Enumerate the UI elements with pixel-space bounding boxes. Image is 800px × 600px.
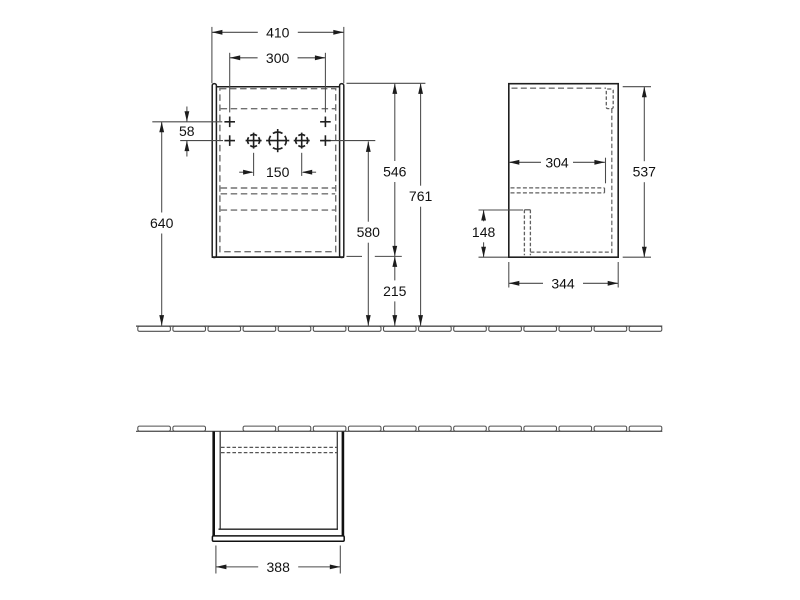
svg-text:215: 215 xyxy=(383,283,407,299)
svg-text:300: 300 xyxy=(266,50,290,66)
svg-text:580: 580 xyxy=(357,224,381,240)
svg-text:761: 761 xyxy=(409,188,433,204)
svg-text:58: 58 xyxy=(179,123,195,139)
svg-text:304: 304 xyxy=(545,154,569,170)
svg-text:537: 537 xyxy=(633,164,657,180)
svg-text:148: 148 xyxy=(472,224,496,240)
svg-text:546: 546 xyxy=(383,164,407,180)
svg-text:410: 410 xyxy=(266,24,290,40)
svg-text:150: 150 xyxy=(266,164,290,180)
svg-text:640: 640 xyxy=(150,215,174,231)
svg-text:388: 388 xyxy=(267,559,291,575)
svg-text:344: 344 xyxy=(551,275,575,291)
